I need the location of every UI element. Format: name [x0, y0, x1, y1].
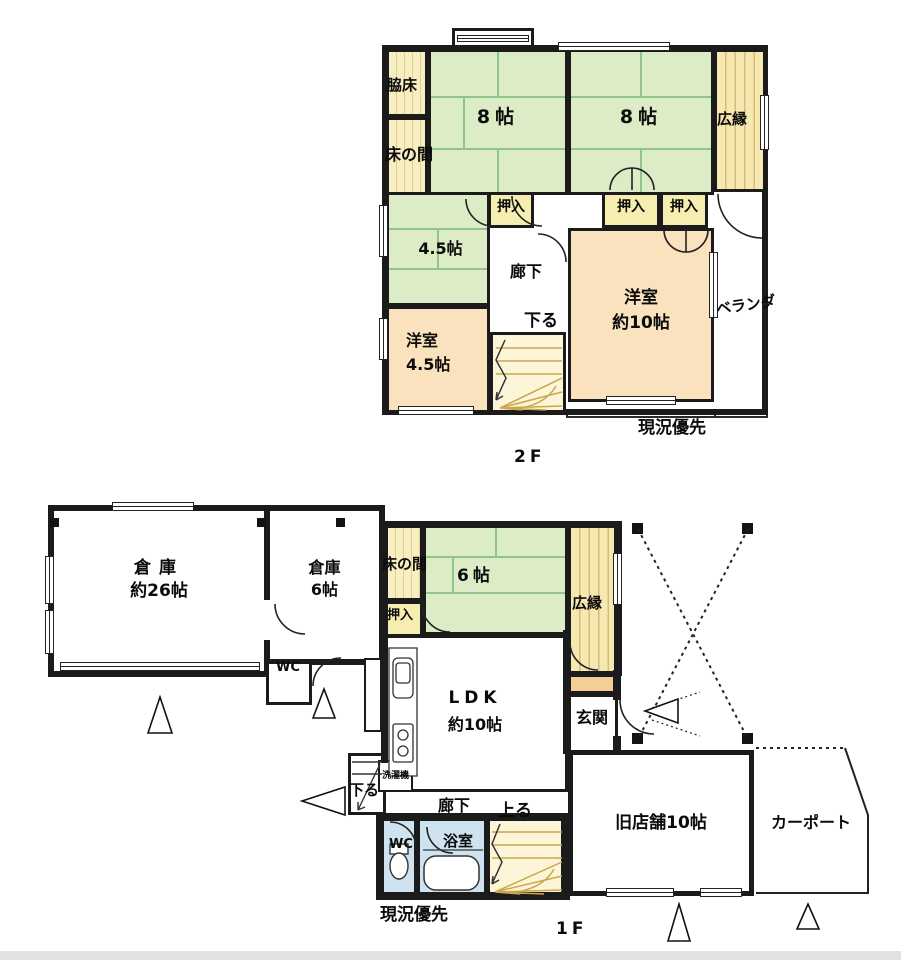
room-label: 4.5帖 — [403, 240, 478, 258]
porch-post — [742, 523, 753, 534]
room-label: 床の間 — [382, 556, 427, 573]
wall — [376, 815, 384, 899]
room-label: 約10帖 — [395, 716, 555, 734]
window — [398, 406, 474, 415]
room-label: 倉庫 — [48, 559, 270, 578]
room-label: LDK — [395, 689, 555, 708]
washing-machine-label: 洗濯機 — [382, 772, 409, 782]
genkan-dotted-rays — [652, 692, 700, 736]
entrance-arrow — [668, 904, 690, 941]
scan-edge-artifact — [0, 951, 901, 960]
stairs-down-label: 下る — [349, 782, 379, 799]
room-label: 旧店舗10帖 — [568, 814, 754, 833]
wall — [383, 521, 622, 528]
room-label: 廊下 — [510, 263, 542, 281]
post — [336, 518, 345, 527]
room-wc-1f — [379, 818, 417, 896]
entrance-arrow — [645, 699, 678, 723]
window — [606, 396, 676, 405]
tatami-line — [431, 96, 565, 98]
window — [558, 42, 670, 51]
window — [112, 502, 194, 511]
post — [50, 518, 59, 527]
wall — [563, 630, 570, 754]
entrance-arrow — [302, 787, 345, 815]
tatami-line — [426, 592, 565, 594]
room-label: 倉庫 — [264, 559, 385, 577]
closet-label: 押入 — [660, 200, 708, 215]
wall — [381, 633, 388, 763]
entrance-arrow — [313, 689, 335, 718]
room-label: 広縁 — [717, 111, 747, 128]
note-label-2f: 現況優先 — [638, 419, 706, 438]
room-label: 廊下 — [438, 797, 470, 815]
window — [606, 888, 674, 897]
room-label: 玄関 — [576, 709, 608, 727]
floor-plan-canvas: 脇床 床の間 8帖 8帖 広縁 押入 押入 押入 4.5帖 廊下 下る 洋室 約… — [0, 0, 901, 960]
window — [760, 95, 769, 150]
room-label: 約26帖 — [48, 582, 270, 601]
room-label: 6帖 — [264, 581, 385, 599]
bay-window-glass — [457, 35, 529, 42]
window — [700, 888, 742, 897]
window — [379, 205, 388, 257]
window — [613, 553, 622, 605]
genkan-step-1f — [568, 674, 618, 694]
tatami-line — [495, 525, 497, 558]
entrance-arrow — [797, 904, 819, 929]
staircase-1f — [487, 818, 566, 896]
note-label-1f: 現況優先 — [380, 906, 448, 925]
room-label: 8帖 — [458, 107, 538, 128]
stairs-up-label: 上る — [498, 802, 532, 821]
tatami-line — [571, 96, 711, 98]
porch-dashed-x — [638, 529, 748, 739]
wc-label: WC — [276, 661, 300, 675]
wc-label: WC — [389, 838, 413, 852]
wall — [613, 736, 621, 754]
room-label: 洋室 — [406, 332, 438, 350]
wall — [376, 892, 570, 900]
room-label: 6帖 — [457, 567, 494, 586]
room-label: 8帖 — [601, 107, 681, 128]
porch-post — [742, 733, 753, 744]
window — [45, 610, 54, 654]
room-label: 4.5帖 — [406, 356, 450, 374]
room-label: 洋室 — [568, 289, 714, 308]
room-label: 浴室 — [443, 833, 473, 850]
carport-label: カーポート — [752, 814, 870, 832]
window — [60, 662, 260, 671]
wall — [613, 670, 621, 700]
tatami-line — [497, 148, 499, 192]
floor-label-1f: 1F — [556, 920, 587, 939]
closet-label: 押入 — [602, 200, 660, 215]
wall — [378, 813, 570, 821]
room-label: 床の間 — [385, 146, 433, 164]
room-bath-1f — [417, 818, 487, 896]
entrance-arrow — [148, 697, 172, 733]
tatami-line — [640, 148, 642, 192]
staircase-2f — [490, 332, 566, 413]
post — [257, 518, 266, 527]
closet-label: 押入 — [387, 609, 413, 623]
room-label: 脇床 — [387, 77, 417, 94]
tatami-line — [640, 52, 642, 96]
tatami-line — [497, 52, 499, 96]
closet-label: 押入 — [488, 200, 534, 215]
partition-kitchen — [364, 658, 382, 732]
window — [379, 318, 388, 360]
room-label: 約10帖 — [568, 314, 714, 333]
porch-post — [632, 523, 643, 534]
floor-label-2f: 2F — [514, 448, 545, 467]
tatami-line — [389, 268, 487, 270]
tatami-line — [452, 556, 454, 594]
doorway-gap — [264, 600, 273, 640]
room-label: 広縁 — [572, 595, 602, 612]
stairs-down-label: 下る — [524, 312, 558, 331]
porch-post — [632, 733, 643, 744]
